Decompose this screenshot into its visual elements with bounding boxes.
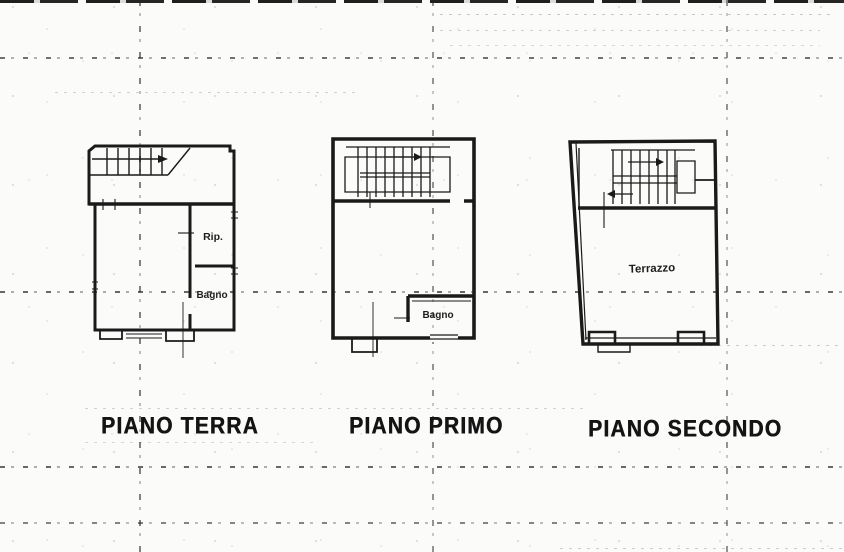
stair-landing — [677, 161, 695, 193]
scan-streak — [55, 92, 355, 93]
stair-direction-arrow-icon — [92, 155, 168, 163]
sheet-top-edge-line — [0, 0, 844, 3]
floor-caption-piano-primo: PIANO PRIMO — [349, 413, 503, 441]
scanned-floor-plan-sheet: Rip. Bagno — [0, 0, 844, 552]
scan-streak — [450, 45, 820, 46]
room-label-bagno: Bagno — [422, 310, 453, 321]
stair-landing — [345, 157, 450, 192]
outer-walls — [570, 141, 718, 344]
room-label-rip: Rip. — [203, 231, 223, 243]
window-gap — [430, 333, 458, 342]
fold-line-horizontal — [0, 466, 844, 468]
window-ticks — [92, 212, 238, 289]
stair-direction-arrow-icon — [607, 190, 633, 198]
room-label-terrazzo: Terrazzo — [629, 262, 676, 276]
fold-line-horizontal — [0, 522, 844, 524]
scan-streak — [85, 442, 315, 443]
entry-steps — [100, 330, 194, 341]
floor-caption-piano-secondo: PIANO SECONDO — [588, 416, 782, 444]
floor-caption-piano-terra: PIANO TERRA — [101, 413, 259, 441]
stair-treads — [346, 147, 450, 197]
floor-plan-piano-primo: Bagno — [326, 132, 481, 364]
fold-line-horizontal — [0, 57, 844, 59]
stair-treads — [89, 148, 190, 175]
stair-direction-arrow-icon — [386, 153, 422, 161]
stair-treads — [613, 150, 675, 204]
floor-plan-piano-terra: Rip. Bagno — [82, 132, 252, 364]
scan-streak — [560, 548, 844, 549]
scan-streak — [85, 408, 585, 409]
room-label-bagno: Bagno — [196, 290, 227, 301]
floor-plan-piano-secondo: Terrazzo — [558, 132, 738, 364]
scan-streak — [440, 30, 820, 31]
stair-rail — [360, 173, 430, 177]
scan-streak — [440, 14, 830, 15]
